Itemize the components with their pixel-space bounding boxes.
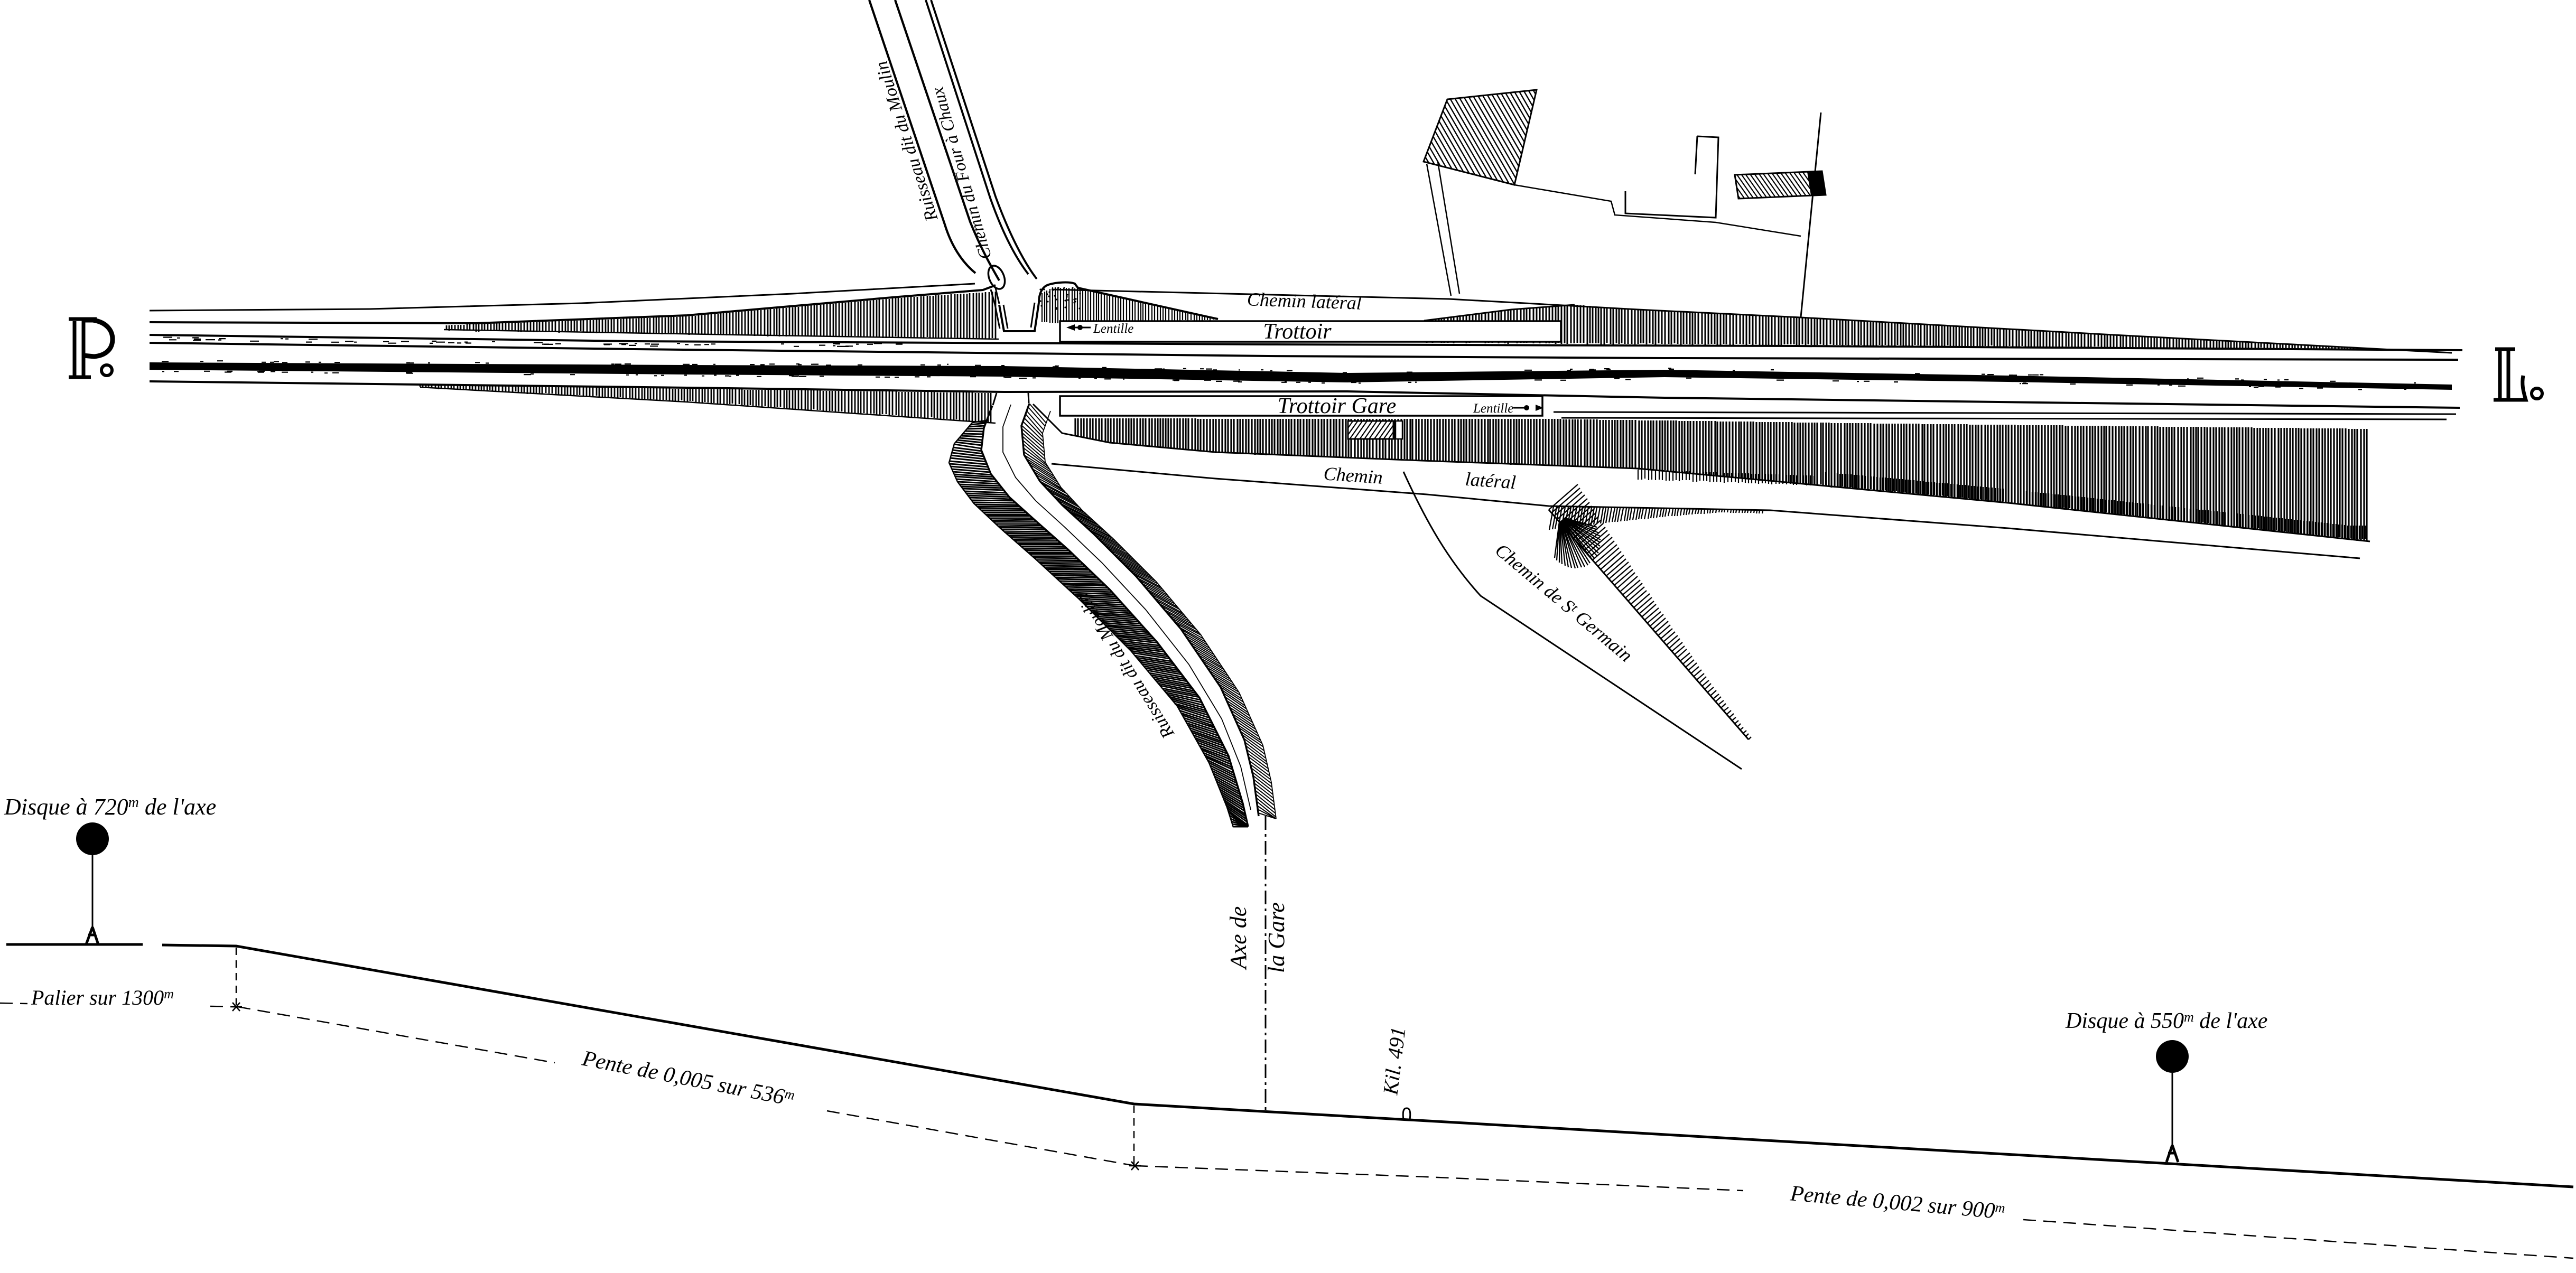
svg-text:Lentille: Lentille [1093, 322, 1133, 336]
svg-text:Trottoir Gare: Trottoir Gare [1278, 394, 1396, 418]
svg-text:Axe de: Axe de [1225, 906, 1251, 970]
svg-text:Disque à 720m de l'axe: Disque à 720m de l'axe [4, 794, 216, 820]
svg-text:Chemin: Chemin [1323, 463, 1384, 488]
svg-text:la Gare: la Gare [1263, 902, 1289, 973]
svg-text:Trottoir: Trottoir [1263, 320, 1332, 344]
svg-text:Disque à 550m de l'axe: Disque à 550m de l'axe [2065, 1009, 2267, 1033]
svg-text:Lentille: Lentille [1473, 401, 1513, 416]
svg-text:Palier sur 1300m: Palier sur 1300m [31, 986, 174, 1009]
svg-text:Ruisseau dit du Moulin: Ruisseau dit du Moulin [872, 59, 942, 224]
svg-text:Chemin latéral: Chemin latéral [1247, 288, 1362, 314]
svg-text:Pente de 0,002 sur 900m: Pente de 0,002 sur 900m [1789, 1181, 2006, 1224]
svg-text:latéral: latéral [1465, 469, 1517, 493]
svg-text:Pente de 0,005 sur 536m: Pente de 0,005 sur 536m [580, 1046, 796, 1111]
svg-text:Kil. 491: Kil. 491 [1378, 1026, 1410, 1097]
